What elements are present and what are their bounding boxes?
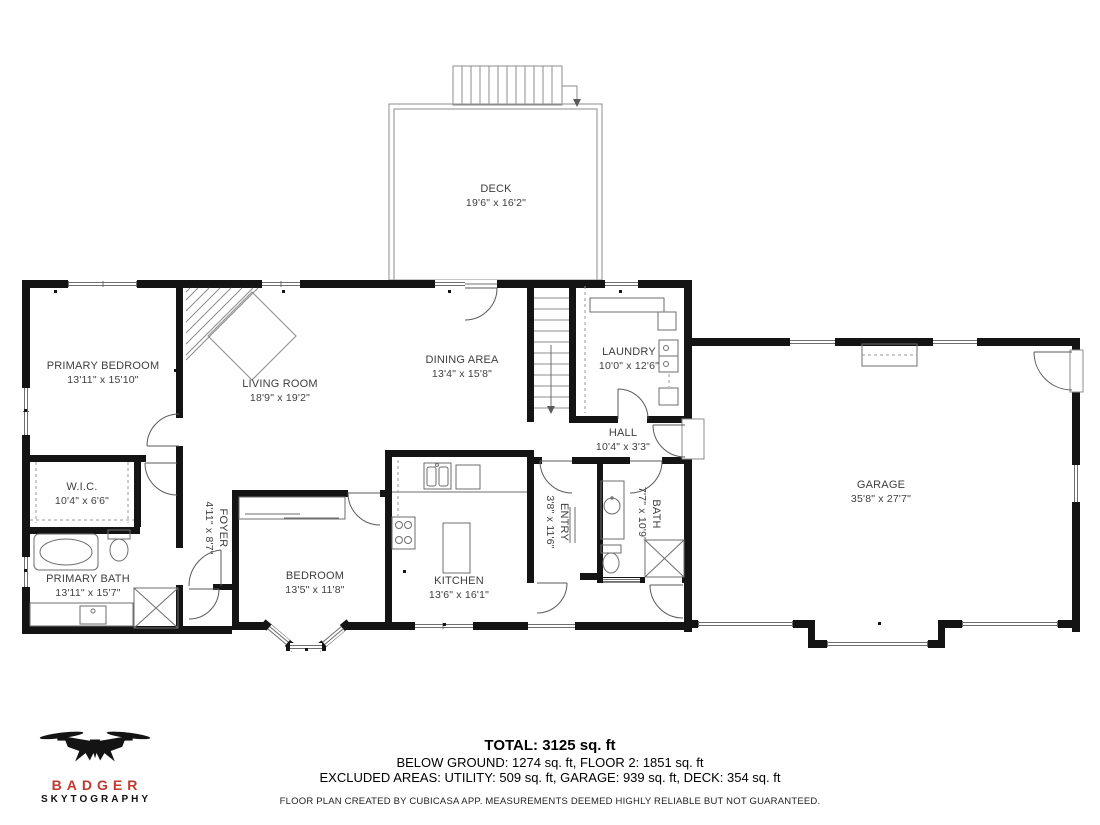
room-name: ENTRY xyxy=(557,495,571,548)
room-dims: 13'6" x 16'1" xyxy=(429,588,489,602)
room-label-bath: BATH 7'7" x 10'9" xyxy=(635,487,663,541)
room-dims: 7'7" x 10'9" xyxy=(635,487,649,541)
room-label-laundry: LAUNDRY 10'0" x 12'6" xyxy=(599,345,659,373)
deck-structure xyxy=(389,66,602,280)
main-staircase xyxy=(534,286,585,414)
room-name: DINING AREA xyxy=(425,353,498,367)
room-dims: 13'4" x 15'8" xyxy=(425,367,498,381)
kitchen-fixtures xyxy=(392,460,527,573)
room-name: GARAGE xyxy=(851,478,911,492)
room-name: FOYER xyxy=(216,501,230,554)
room-dims: 13'11" x 15'7" xyxy=(46,586,130,600)
room-name: PRIMARY BEDROOM xyxy=(47,359,160,373)
room-name: PRIMARY BATH xyxy=(46,572,130,586)
room-label-dining-area: DINING AREA 13'4" x 15'8" xyxy=(425,353,498,381)
room-dims: 35'8" x 27'7" xyxy=(851,492,911,506)
garage-attic-hatch xyxy=(862,344,917,366)
basement-staircase xyxy=(186,288,296,380)
room-dims: 13'11" x 15'10" xyxy=(47,373,160,387)
room-name: BATH xyxy=(649,487,663,541)
room-label-living-room: LIVING ROOM 18'9" x 19'2" xyxy=(242,377,318,405)
room-dims: 13'5" x 11'8" xyxy=(285,583,344,597)
room-name: DECK xyxy=(466,182,526,196)
room-name: W.I.C. xyxy=(55,480,109,494)
room-name: KITCHEN xyxy=(429,574,489,588)
brand-name: BADGER xyxy=(22,778,167,793)
deck-stairs-arrow xyxy=(573,99,581,107)
room-label-kitchen: KITCHEN 13'6" x 16'1" xyxy=(429,574,489,602)
room-label-foyer: FOYER 4'11" x 8'7" xyxy=(202,501,230,554)
room-name: BEDROOM xyxy=(285,569,344,583)
room-label-wic: W.I.C. 10'4" x 6'6" xyxy=(55,480,109,508)
room-dims: 4'11" x 8'7" xyxy=(202,501,216,554)
floor-plan-drawing xyxy=(0,0,1100,825)
brand-subname: SKYTOGRAPHY xyxy=(22,793,167,806)
logo-block: BADGER SKYTOGRAPHY xyxy=(22,727,167,806)
floor-plan-page: DECK 19'6" x 16'2" PRIMARY BEDROOM 13'11… xyxy=(0,0,1100,825)
room-label-deck: DECK 19'6" x 16'2" xyxy=(466,182,526,210)
room-name: LAUNDRY xyxy=(599,345,659,359)
room-dims: 18'9" x 19'2" xyxy=(242,391,318,405)
room-label-hall: HALL 10'4" x 3'3" xyxy=(596,426,650,454)
room-dims: 10'0" x 12'6" xyxy=(599,359,659,373)
room-label-bedroom: BEDROOM 13'5" x 11'8" xyxy=(285,569,344,597)
drone-icon xyxy=(31,727,159,773)
room-label-primary-bedroom: PRIMARY BEDROOM 13'11" x 15'10" xyxy=(47,359,160,387)
room-dims: 19'6" x 16'2" xyxy=(466,196,526,210)
room-label-garage: GARAGE 35'8" x 27'7" xyxy=(851,478,911,506)
bedroom-closet xyxy=(239,497,345,519)
room-name: LIVING ROOM xyxy=(242,377,318,391)
room-label-entry: ENTRY 3'8" x 11'6" xyxy=(543,495,571,548)
room-dims: 3'8" x 11'6" xyxy=(543,495,557,548)
room-name: HALL xyxy=(596,426,650,440)
room-label-primary-bath: PRIMARY BATH 13'11" x 15'7" xyxy=(46,572,130,600)
room-dims: 10'4" x 3'3" xyxy=(596,440,650,454)
room-dims: 10'4" x 6'6" xyxy=(55,494,109,508)
